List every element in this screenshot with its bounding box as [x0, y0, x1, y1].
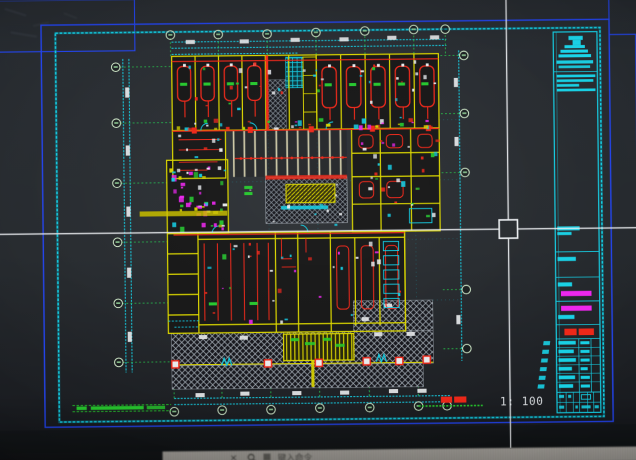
side-note-yellow: [140, 211, 228, 217]
corridor-beams: [232, 129, 347, 177]
cad-scene: 1: 100 ✕ 键入命令: [0, 0, 636, 460]
highlight-magenta-row-2: [561, 306, 592, 311]
floor-plan: [166, 54, 443, 390]
close-icon[interactable]: ✕: [230, 453, 238, 460]
screen-photo: 1: 100 ✕ 键入命令: [0, 0, 636, 460]
layer-icon[interactable]: [263, 453, 270, 460]
highlight-magenta-row-1: [561, 291, 592, 296]
entry-steps: [283, 333, 354, 360]
drawing-viewport[interactable]: 1: 100 ✕ 键入命令: [0, 0, 636, 460]
drawing-title-red: [564, 328, 594, 335]
courtyard-block: [266, 175, 348, 224]
scale-label: 1: 100: [500, 395, 544, 408]
